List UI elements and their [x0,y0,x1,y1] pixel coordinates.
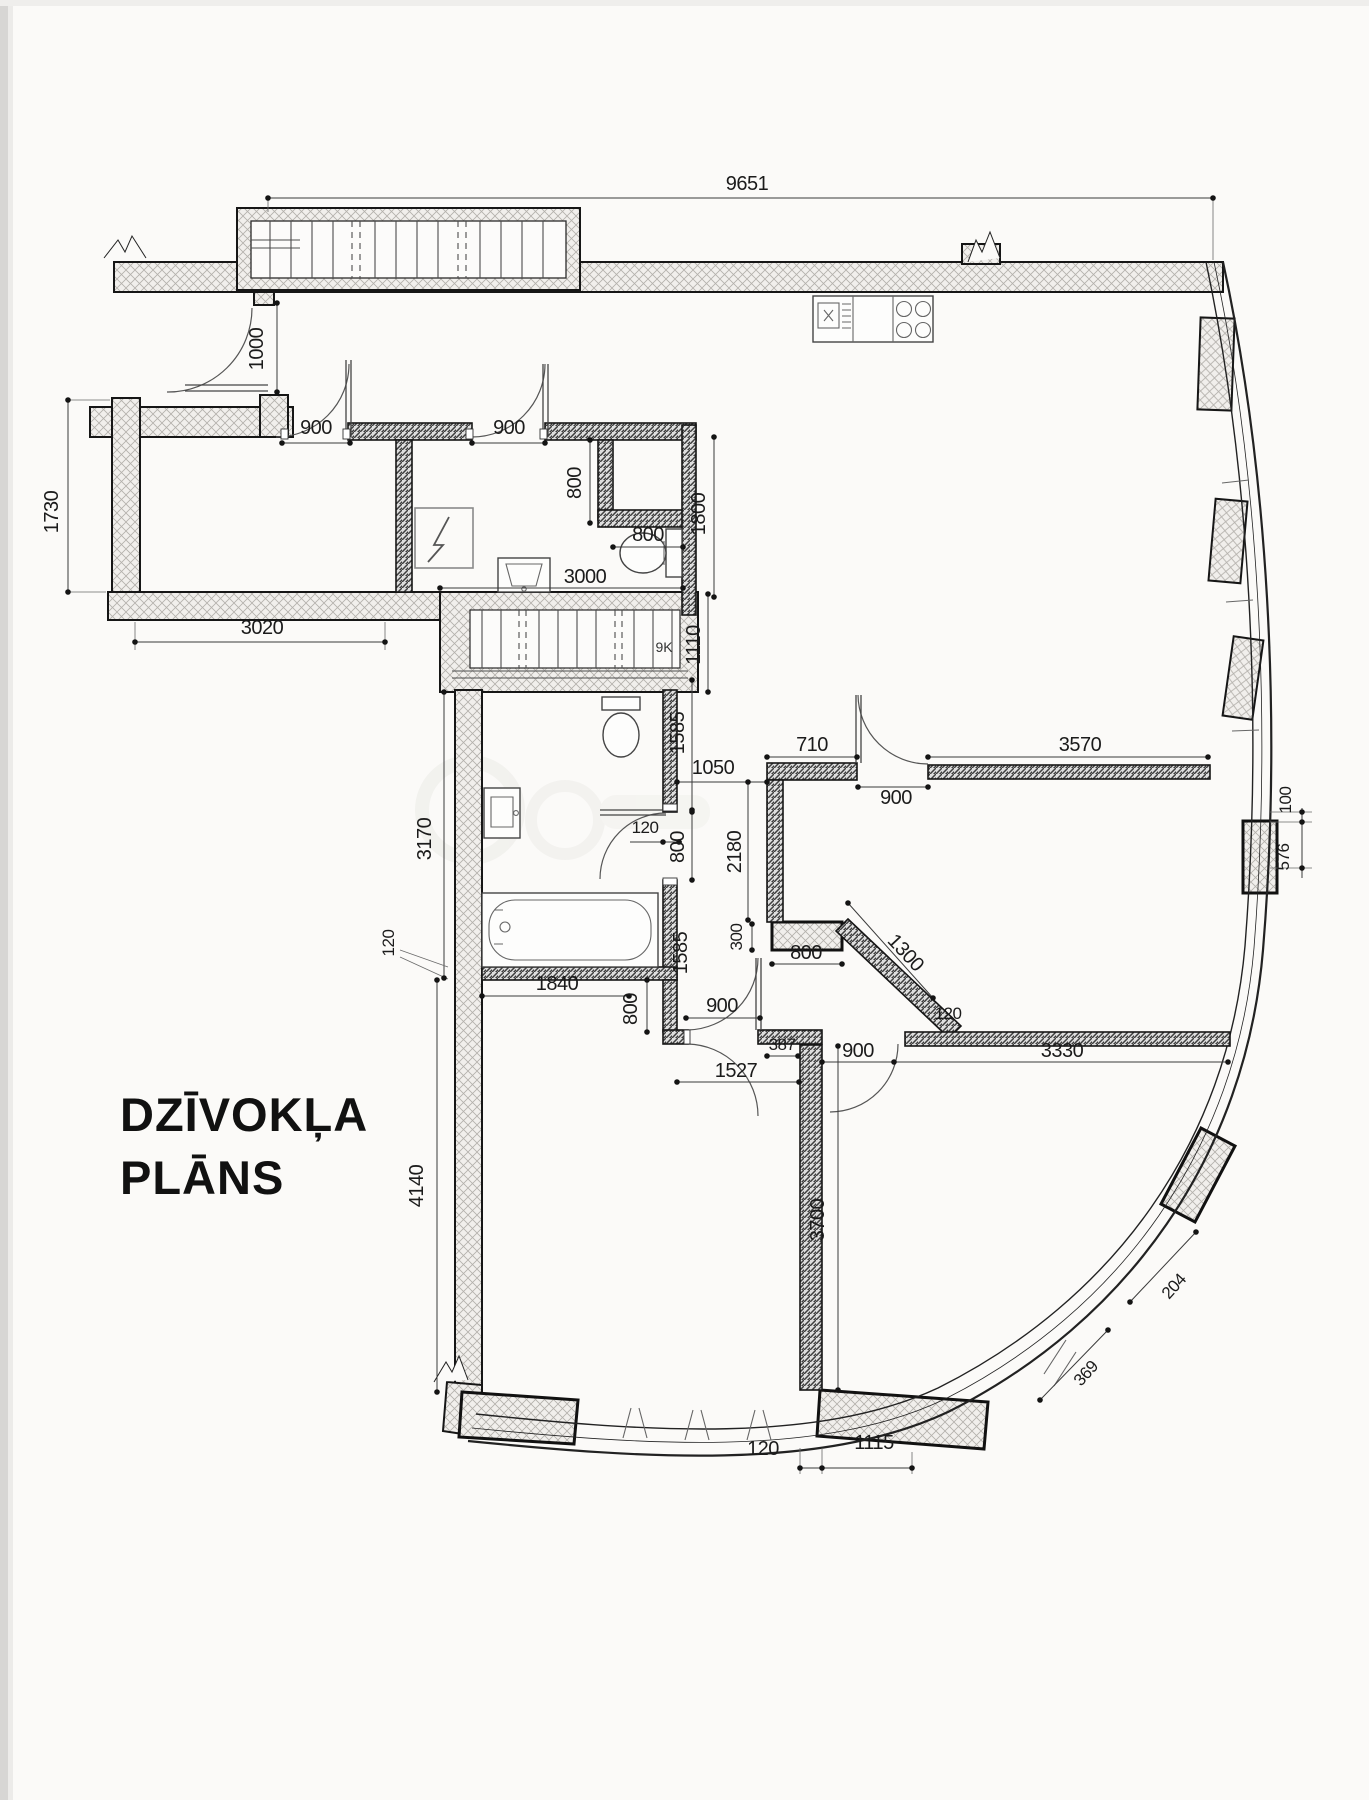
plan-title-line1: DZĪVOKĻA [120,1088,368,1142]
dim-hall-gap: 1050 [692,757,735,779]
plan-title-line2: PLĀNS [120,1151,284,1204]
dim-wall-387: 387 [769,1035,796,1054]
stair-flight-label: 9K [655,639,673,655]
dim-pier-gap: 100 [1276,787,1295,814]
bath-toilet-icon [602,697,640,757]
scan-edge-top [0,0,1369,6]
niche-wall-v [598,440,613,520]
dim-door8-width: 900 [842,1040,874,1062]
hall-wall-left [348,423,472,440]
entry-jamb [254,292,274,305]
wall-left-lower [455,690,482,1390]
room1-bottom-wall [108,592,440,620]
dim-kitchen-wall: 1800 [688,492,710,535]
dim-bottom-120: 120 [747,1438,779,1460]
dim-room1-height: 1730 [41,490,63,533]
dim-block-300: 300 [727,924,746,951]
wall-710 [767,763,857,780]
dim-bath-wall-lower: 1585 [670,931,692,974]
dim-door6-width: 900 [706,995,738,1017]
hall-wall-right [545,423,696,440]
dim-bath-wall-thick: 120 [632,818,659,837]
dim-room3-height: 4140 [406,1164,428,1207]
corridor-wall-800 [663,980,677,1032]
facade-pier-b [1208,499,1247,583]
floorplan-drawing: 9K [0,0,1369,1800]
bathtub-icon [482,893,658,967]
dim-hall-door-right: 900 [493,417,525,439]
facade-pier-d [1243,821,1277,893]
dim-corridor-1527: 1527 [715,1060,758,1082]
wall-2180 [767,780,783,922]
dim-niche-depth: 800 [564,467,586,499]
dim-room1-width: 3020 [241,617,284,639]
dim-tub-length: 1840 [536,973,579,995]
dim-bath-height: 3170 [414,817,436,860]
dim-niche-width: 800 [632,524,664,546]
room1-left-pier [112,398,140,610]
scanned-floorplan-page: 9K [0,0,1369,1800]
hall-sink-icon [498,558,550,592]
dim-hall-door-left: 900 [300,417,332,439]
dim-block-800: 800 [790,942,822,964]
dim-wall-3700: 3700 [807,1198,829,1241]
bath-sink-icon [484,788,520,838]
scan-edge-left-fade [8,0,13,1800]
wall-3570 [928,765,1210,779]
dim-bath-wall-upper: 1585 [667,711,689,754]
dim-wall-3570: 3570 [1059,734,1102,756]
partition-room1-wc [396,440,412,592]
dim-wall-710: 710 [796,734,828,756]
dim-entry-door: 1000 [246,327,268,370]
stairwell-top-inner [251,221,566,278]
dim-room2-door: 900 [880,787,912,809]
dim-stair-depth: 1110 [683,625,705,665]
dim-step-120: 120 [935,1004,962,1023]
dim-pier-width: 576 [1274,844,1293,871]
dim-wc-width: 3000 [564,566,607,588]
dim-bath-bottom-thick: 120 [379,930,398,957]
dim-bottom-1115: 1115 [854,1432,894,1454]
scan-edge-left [0,0,8,1800]
dim-bath-door: 800 [667,831,689,863]
dim-top-width: 9651 [726,173,769,195]
dim-door6-wall: 800 [620,993,642,1025]
dim-wall-2180: 2180 [724,830,746,873]
kitchen-stove-icon [813,296,933,342]
dim-wall-3330: 3330 [1041,1040,1084,1062]
